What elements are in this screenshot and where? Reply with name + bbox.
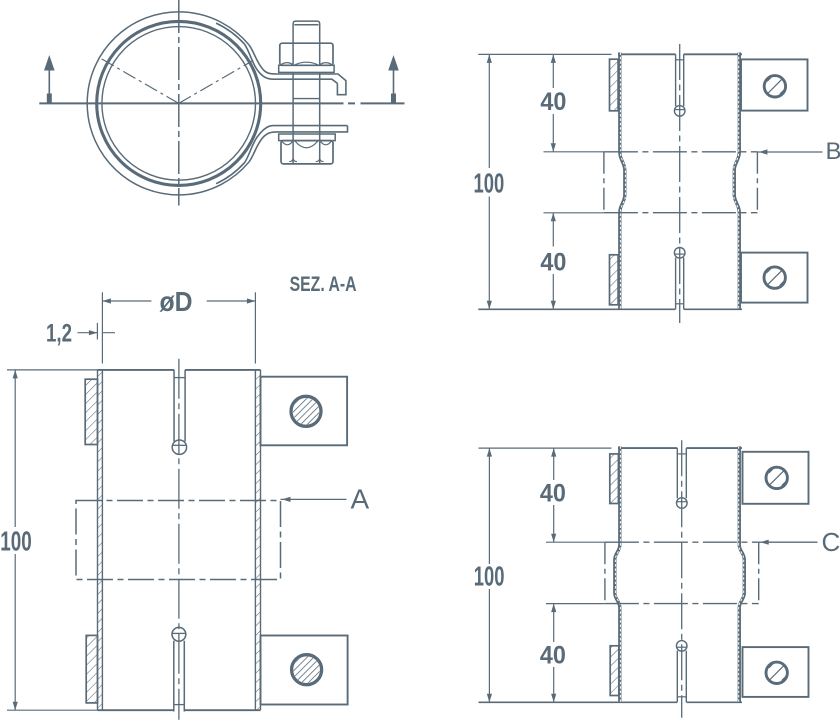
svg-text:1,2: 1,2: [46, 320, 72, 348]
svg-text:40: 40: [540, 88, 566, 116]
svg-text:øD: øD: [160, 286, 193, 317]
svg-text:40: 40: [540, 249, 566, 277]
svg-text:A: A: [351, 484, 370, 515]
svg-text:40: 40: [540, 479, 566, 507]
svg-text:B: B: [826, 138, 840, 165]
svg-text:40: 40: [540, 642, 566, 670]
svg-text:SEZ. A-A: SEZ. A-A: [290, 273, 357, 296]
svg-text:100: 100: [0, 526, 31, 557]
svg-text:C: C: [822, 527, 840, 557]
svg-text:100: 100: [474, 561, 505, 592]
svg-text:100: 100: [474, 168, 505, 199]
